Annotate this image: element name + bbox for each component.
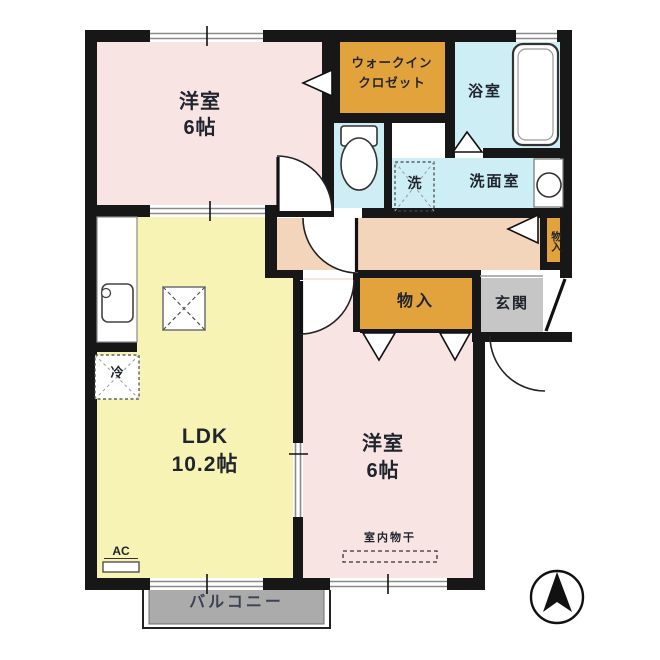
label-wic-line1: ウォークイン [336, 57, 448, 70]
label-entrance: 玄関 [481, 296, 543, 312]
kitchen-counter [97, 217, 137, 342]
bathtub [513, 44, 558, 145]
label-fridge: 冷 [95, 366, 139, 380]
label-wic-line2: クロゼット [336, 77, 448, 90]
label-balcony: バルコニー [149, 595, 324, 612]
label-indoor-drying: 室内物干 [343, 533, 437, 545]
label-bedroom-bottom-size: 6帖 [313, 461, 453, 482]
label-ldk-size: 10.2帖 [125, 454, 285, 476]
door-swing-entrance [490, 336, 545, 391]
label-washroom: 洗面室 [440, 174, 550, 190]
floorplan: 洋室 6帖 ウォークイン クロゼット 浴室 洗 洗面室 物入 玄関 物入 LDK… [0, 0, 660, 660]
ac-unit-box [103, 562, 139, 572]
label-ac: AC [104, 545, 138, 559]
label-washer: 洗 [395, 176, 434, 191]
label-bedroom2-storage: 物入 [360, 294, 472, 311]
label-hall-storage: 物入 [545, 219, 561, 263]
label-bedroom-bottom-name: 洋室 [313, 434, 453, 455]
north-arrow-icon [531, 571, 583, 623]
label-bedroom-top-size: 6帖 [130, 118, 270, 139]
label-bedroom-top-name: 洋室 [130, 92, 270, 113]
floorplan-linework [0, 0, 660, 660]
toilet-bowl [341, 138, 377, 190]
entrance-door-leaf [546, 279, 565, 331]
label-bathroom: 浴室 [452, 84, 518, 100]
faucet [102, 289, 111, 298]
label-ldk-name: LDK [125, 426, 285, 448]
